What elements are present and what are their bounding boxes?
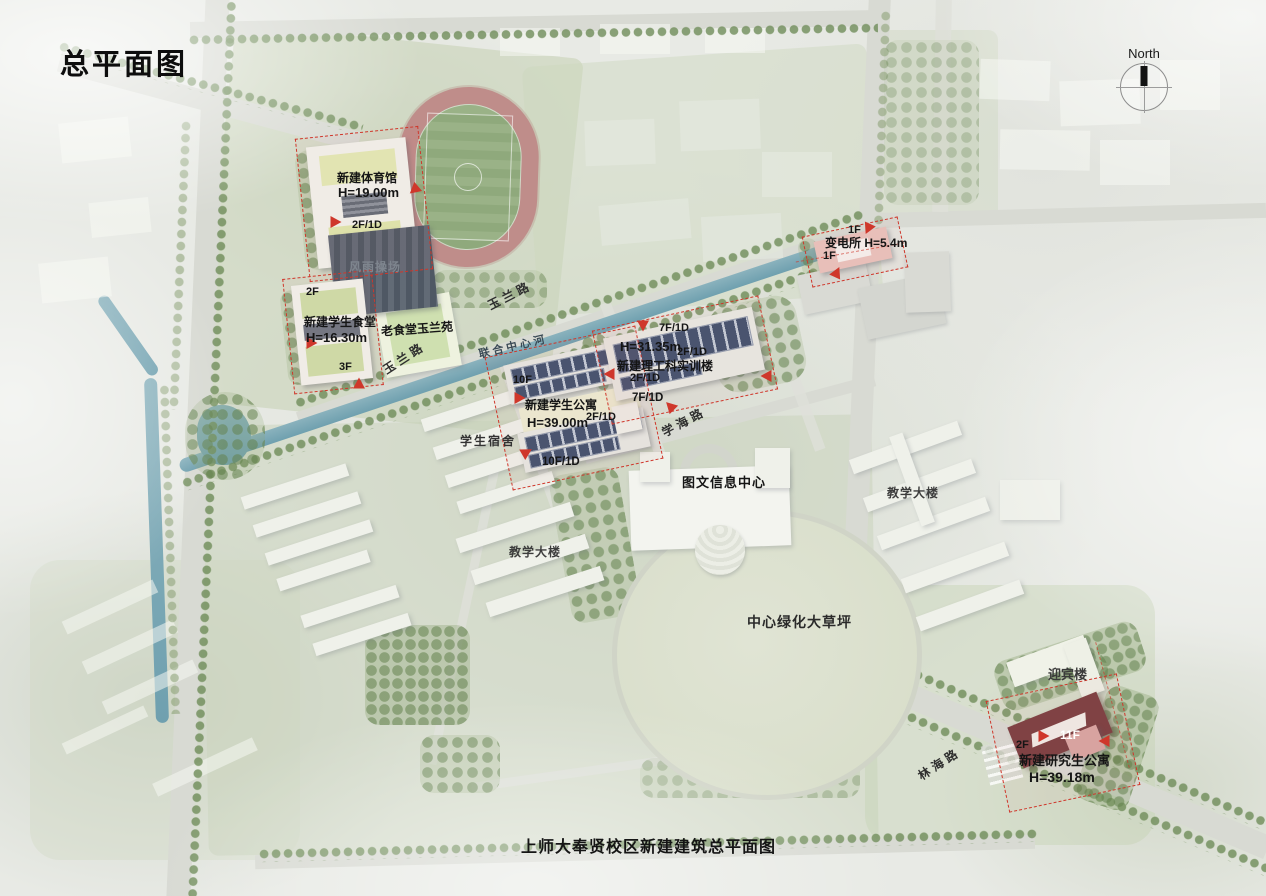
teaching-building-right-slab [877, 497, 990, 550]
gym-site-outline [295, 126, 433, 282]
training-podium-a-label: 2F/1D [677, 347, 707, 359]
gym-floors-label: 2F/1D [352, 220, 382, 232]
ghost-block [88, 197, 151, 238]
apartment-name-label: 新建学生公寓 [525, 399, 597, 412]
entrance-marker-icon [331, 216, 342, 228]
training-name-label: 新建理工科实训楼 [617, 360, 713, 373]
ghost-block [1100, 140, 1170, 185]
graduate-height-label: H=39.18m [1029, 770, 1095, 785]
tree-grove [884, 40, 979, 205]
tree-grove-orchard [365, 625, 470, 725]
campus-block [904, 251, 951, 313]
apartment-podium-label: 2F/1D [586, 412, 616, 424]
dormitory-label: 学生宿舍 [460, 435, 516, 448]
campus-block [762, 152, 832, 197]
site-plan-canvas: 总平面图 上师大奉贤校区新建建筑总平面图 North 新建体育馆 H=19.00… [0, 0, 1266, 896]
campus-block-east [1000, 480, 1060, 520]
gym-height-label: H=19.00m [338, 186, 399, 200]
canteen-floors-upper-label: 2F [306, 287, 319, 299]
guest-house-label: 迎宾楼 [1048, 668, 1087, 682]
lawn-label: 中心绿化大草坪 [747, 615, 852, 630]
entrance-marker-icon [515, 392, 526, 404]
north-indicator: North [1106, 46, 1182, 111]
graduate-name-label: 新建研究生公寓 [1019, 754, 1110, 768]
north-needle [1141, 66, 1148, 86]
ghost-block [979, 59, 1050, 101]
training-floors-bottom-label: 7F/1D [632, 392, 663, 404]
gym-name-label: 新建体育馆 [337, 172, 397, 185]
tree-grove [420, 735, 500, 793]
training-height-label: H=31.35m [620, 340, 681, 354]
campus-block [598, 198, 691, 246]
canteen-floors-lower-label: 3F [339, 362, 352, 374]
entrance-marker-icon [1099, 735, 1110, 747]
campus-block [679, 99, 761, 152]
entrance-marker-icon [1039, 730, 1050, 742]
library-dome [695, 525, 745, 575]
teaching-left-label: 教学大楼 [509, 546, 561, 559]
north-label: North [1106, 46, 1182, 61]
north-arrow-icon [1120, 63, 1168, 111]
entrance-marker-icon [761, 370, 772, 382]
apartment-floors-d-label: 10F/1D [542, 456, 580, 468]
training-floors-top-label: 7F/1D [659, 323, 689, 335]
ghost-block [58, 116, 132, 163]
teaching-right-label: 教学大楼 [887, 487, 939, 500]
entrance-marker-icon [353, 378, 365, 389]
substation-floors-a-label: 1F [848, 225, 861, 237]
page-title: 总平面图 [60, 50, 188, 80]
ghost-block [38, 256, 112, 303]
training-podium-b-label: 2F/1D [630, 373, 660, 385]
graduate-floors-label: 11F [1060, 729, 1080, 742]
canopy-playground-label: 风雨操场 [349, 261, 401, 274]
plan-caption: 上师大奉贤校区新建建筑总平面图 [521, 840, 776, 857]
entrance-marker-icon [604, 368, 615, 380]
campus-block [584, 119, 656, 166]
canteen-height-label: H=16.30m [306, 331, 367, 345]
canteen-name-label: 新建学生食堂 [304, 316, 376, 329]
canal-northwest [96, 293, 160, 378]
tree-grove [185, 392, 265, 480]
apartment-height-label: H=39.00m [527, 416, 588, 430]
library-label: 图文信息中心 [682, 476, 766, 490]
ghost-block [1000, 129, 1091, 171]
substation-name-label: 变电所 H=5.4m [825, 237, 907, 250]
substation-floors-b-label: 1F [823, 251, 836, 263]
apartment-floors-label: 10F [513, 375, 532, 387]
graduate-podium-label: 2F [1016, 740, 1029, 752]
central-lawn [612, 510, 922, 800]
entrance-marker-icon [637, 321, 649, 332]
